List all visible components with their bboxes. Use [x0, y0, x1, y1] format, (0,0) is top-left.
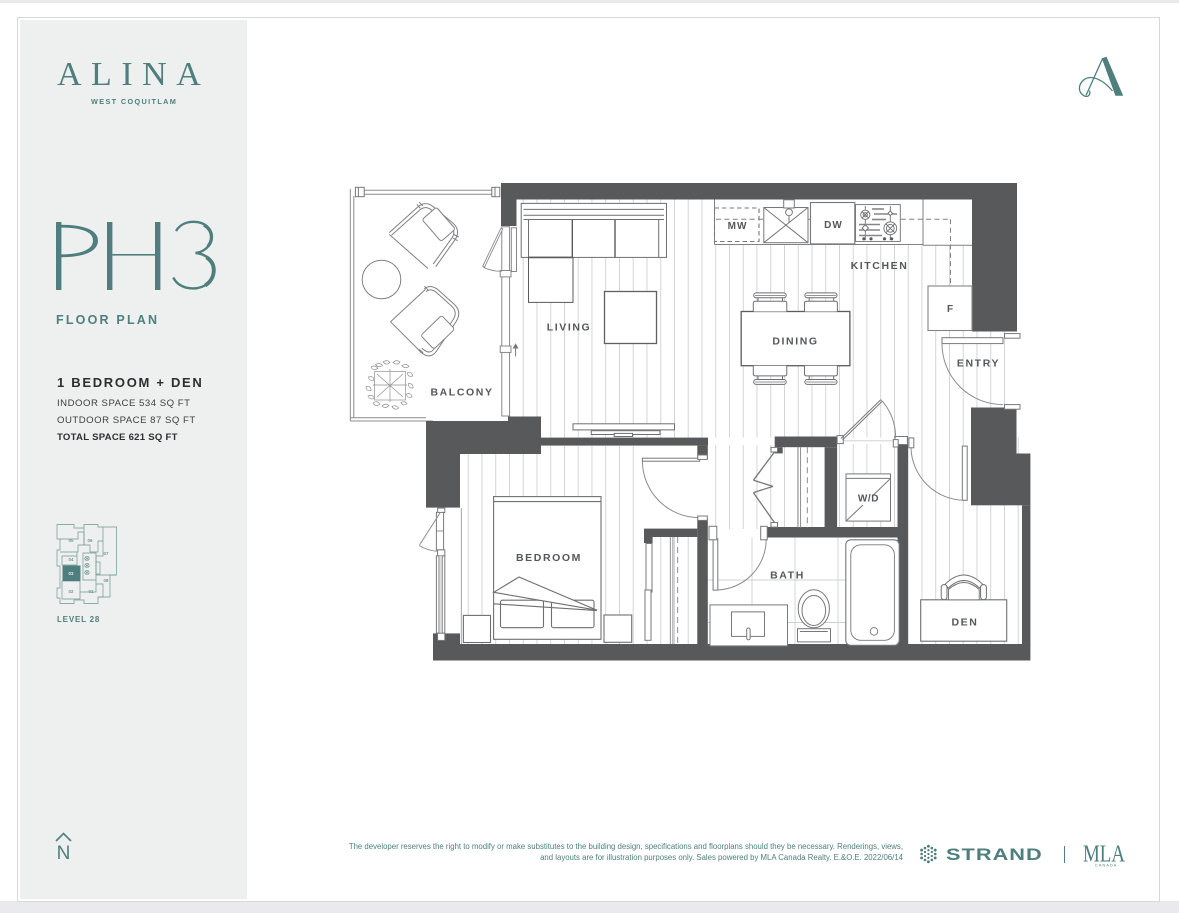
svg-text:CANADA: CANADA: [1095, 864, 1117, 868]
svg-text:06: 06: [88, 538, 93, 543]
svg-text:KITCHEN: KITCHEN: [851, 260, 909, 272]
svg-text:DINING: DINING: [772, 336, 818, 348]
svg-text:07: 07: [104, 551, 109, 556]
svg-text:BEDROOM: BEDROOM: [516, 552, 582, 564]
svg-text:F: F: [947, 304, 954, 315]
svg-text:N: N: [57, 843, 71, 864]
svg-text:W/D: W/D: [858, 494, 879, 505]
svg-text:STRAND: STRAND: [946, 845, 1043, 864]
svg-text:04: 04: [69, 557, 74, 562]
svg-text:LIVING: LIVING: [547, 322, 592, 334]
svg-text:08: 08: [104, 578, 109, 583]
svg-text:ENTRY: ENTRY: [957, 358, 1000, 370]
svg-text:MW: MW: [728, 221, 748, 232]
svg-text:01: 01: [89, 589, 94, 594]
svg-text:03: 03: [69, 571, 74, 576]
svg-text:BATH: BATH: [770, 570, 805, 582]
svg-text:02: 02: [69, 589, 74, 594]
svg-text:05: 05: [69, 538, 74, 543]
svg-text:DEN: DEN: [952, 617, 979, 629]
svg-text:BALCONY: BALCONY: [430, 387, 493, 399]
svg-text:DW: DW: [824, 220, 843, 231]
